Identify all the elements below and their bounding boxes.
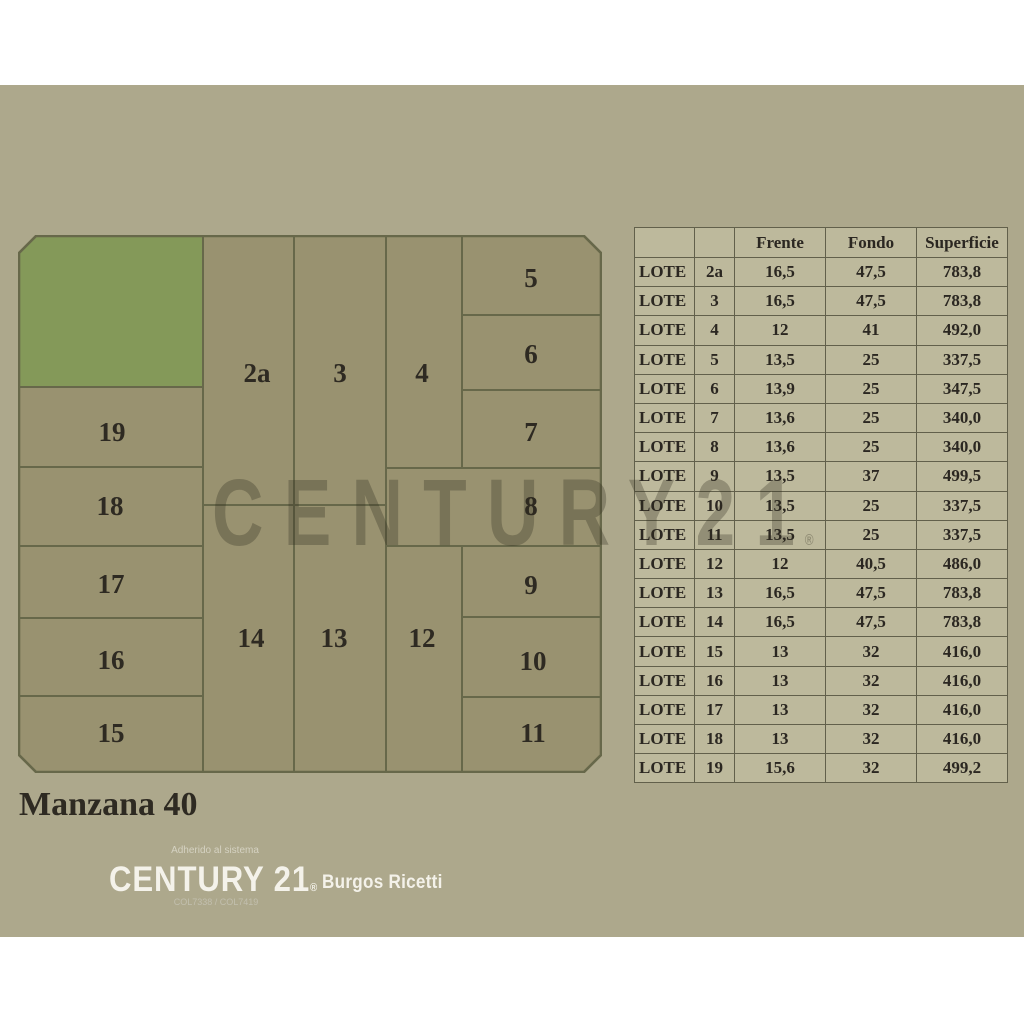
svg-text:4: 4 [415,358,429,388]
svg-text:11: 11 [520,718,546,748]
svg-text:2a: 2a [244,358,272,388]
svg-text:17: 17 [98,569,125,599]
svg-text:16: 16 [98,645,125,675]
svg-text:18: 18 [97,491,124,521]
svg-text:15: 15 [98,718,125,748]
svg-text:10: 10 [520,646,547,676]
svg-text:13: 13 [321,623,348,653]
svg-text:6: 6 [524,339,538,369]
svg-text:7: 7 [524,417,538,447]
svg-text:3: 3 [333,358,347,388]
svg-text:19: 19 [99,417,126,447]
svg-text:9: 9 [524,570,538,600]
svg-text:14: 14 [238,623,265,653]
svg-text:5: 5 [524,263,538,293]
svg-text:12: 12 [409,623,436,653]
